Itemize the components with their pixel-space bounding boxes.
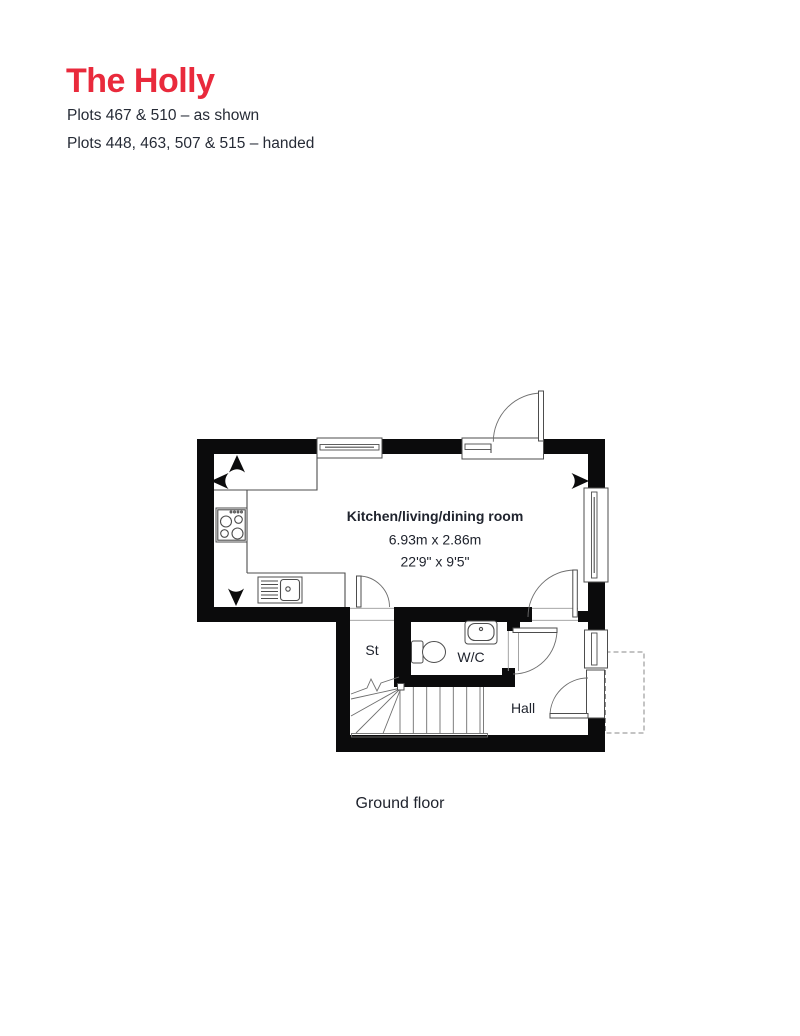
sink-icon — [258, 577, 302, 603]
room-label-hall: Hall — [511, 700, 535, 716]
floorplan-svg: Kitchen/living/dining room 6.93m x 2.86m… — [0, 0, 800, 1036]
window-icon-top-right — [462, 438, 544, 459]
door-swing-arc — [359, 576, 390, 607]
window-icon-top-left — [317, 438, 382, 458]
stair-newel — [398, 684, 405, 691]
door-swing-arc — [513, 630, 557, 674]
garden-door — [493, 391, 543, 442]
door-leaf — [539, 391, 544, 441]
basin-icon — [465, 621, 497, 644]
front-door — [550, 670, 605, 718]
store-door — [350, 576, 394, 620]
hob-icon — [216, 508, 247, 542]
room-label-kitchen: Kitchen/living/dining room — [347, 508, 524, 524]
stair-treads — [400, 687, 484, 734]
dimension-arrow-right-icon — [572, 473, 590, 489]
room-dimensions-metric: 6.93m x 2.86m — [389, 532, 482, 548]
room-dimensions-imperial: 22'9" x 9'5" — [401, 554, 470, 570]
page-root: The Holly Plots 467 & 510 – as shown Plo… — [0, 0, 800, 1036]
door-leaf — [573, 570, 578, 617]
door-leaf — [357, 576, 362, 607]
door-swing-arc — [528, 570, 575, 617]
window-icon-right-kitchen — [584, 488, 608, 582]
dimension-arrow-down-icon — [228, 589, 244, 607]
kitchen-hall-door — [528, 570, 578, 620]
toilet-icon — [412, 641, 446, 663]
door-swing-arc — [493, 393, 542, 442]
stair-break-line — [351, 677, 399, 694]
wc-door — [508, 628, 557, 674]
room-label-wc: W/C — [457, 649, 484, 665]
door-swing-arc — [550, 678, 588, 716]
floor-caption: Ground floor — [356, 795, 446, 812]
door-leaf — [513, 628, 557, 633]
door-leaf — [550, 714, 588, 719]
window-icon-right-hall — [585, 630, 608, 668]
room-label-store: St — [365, 642, 378, 658]
canopy-dashed-outline — [606, 652, 645, 733]
dimension-arrow-up-icon — [229, 455, 245, 473]
